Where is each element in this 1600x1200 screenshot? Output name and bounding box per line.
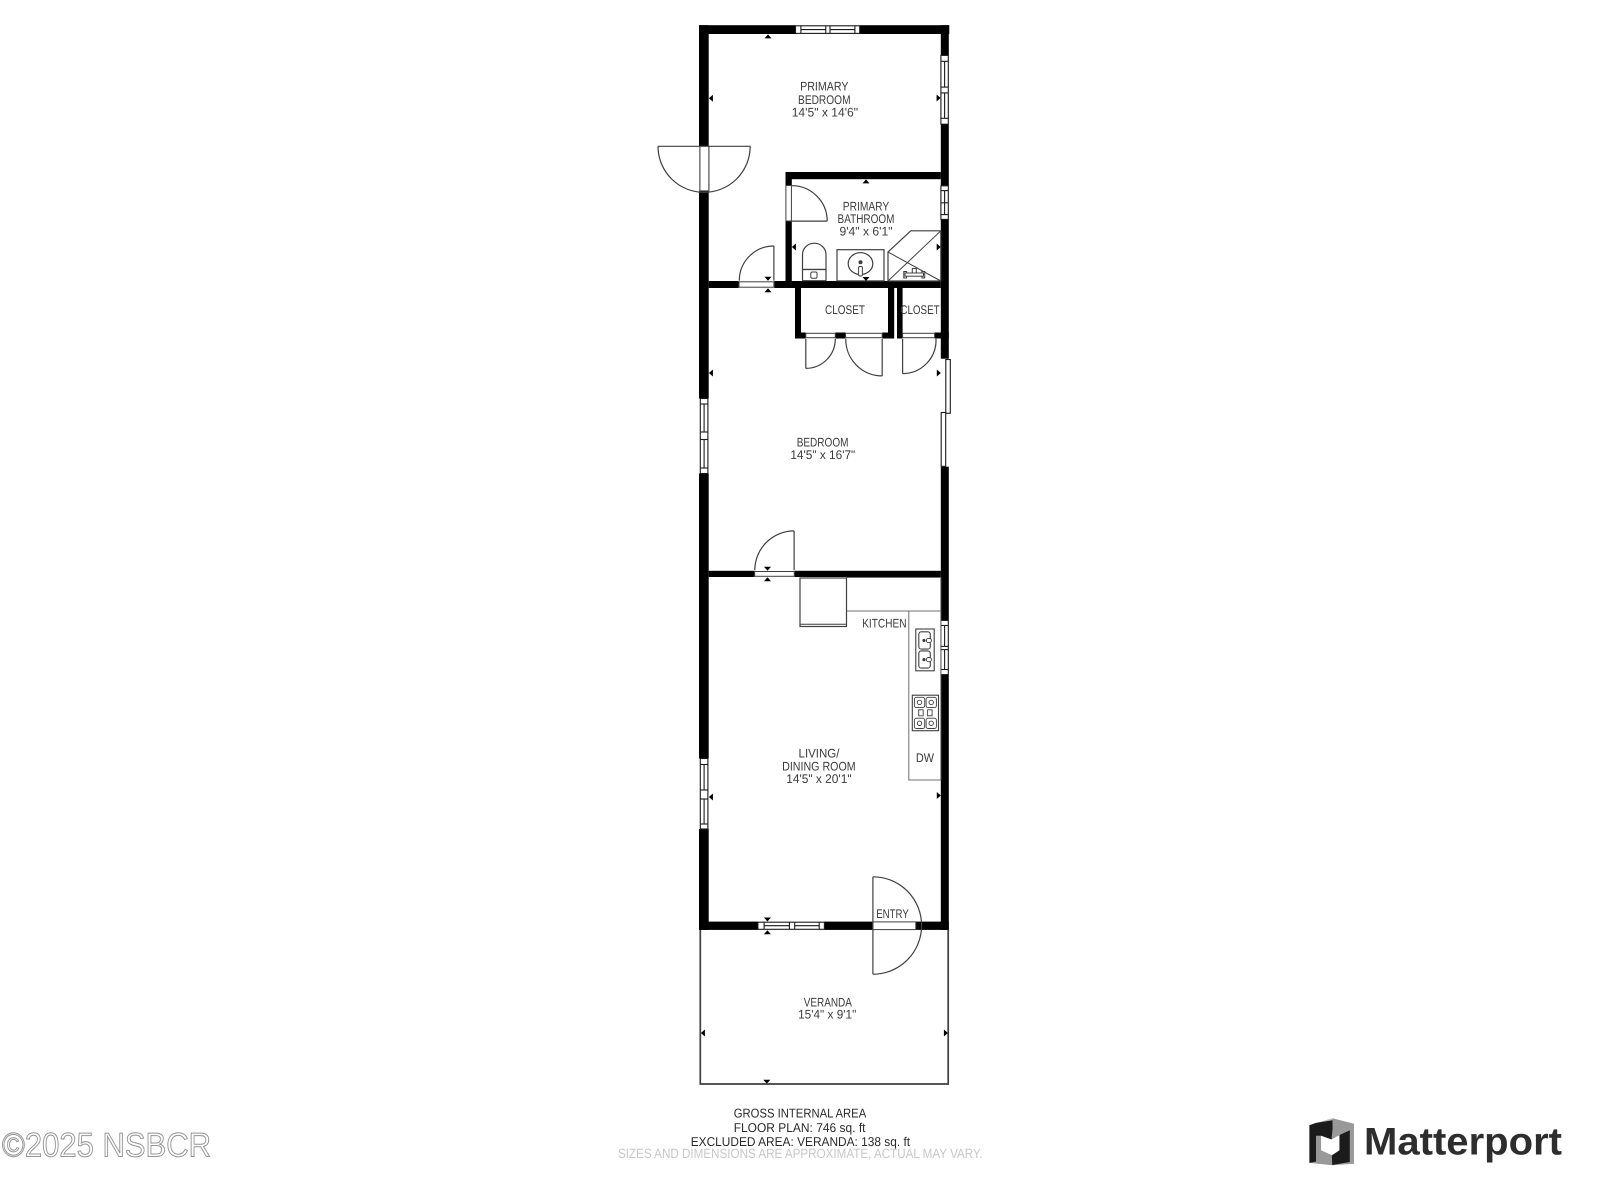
svg-text:©2025 NSBCR: ©2025 NSBCR — [2, 1127, 211, 1165]
svg-text:SIZES AND DIMENSIONS ARE APPRO: SIZES AND DIMENSIONS ARE APPROXIMATE, AC… — [618, 1146, 983, 1161]
svg-text:CLOSET: CLOSET — [825, 303, 865, 317]
svg-text:PRIMARY: PRIMARY — [800, 80, 849, 94]
svg-text:KITCHEN: KITCHEN — [862, 616, 906, 630]
svg-text:15'4" x 9'1": 15'4" x 9'1" — [798, 1008, 856, 1022]
svg-text:14'5" x 20'1": 14'5" x 20'1" — [786, 772, 851, 786]
svg-text:14'5" x 16'7": 14'5" x 16'7" — [790, 448, 855, 462]
svg-text:ENTRY: ENTRY — [876, 907, 909, 921]
svg-text:CLOSET: CLOSET — [900, 303, 940, 317]
svg-text:GROSS INTERNAL AREA: GROSS INTERNAL AREA — [734, 1106, 867, 1121]
svg-text:FLOOR PLAN: 746 sq. ft: FLOOR PLAN: 746 sq. ft — [734, 1120, 866, 1135]
svg-text:14'5" x 14'6": 14'5" x 14'6" — [792, 106, 858, 120]
svg-text:DINING ROOM: DINING ROOM — [782, 759, 856, 773]
svg-text:9'4" x 6'1": 9'4" x 6'1" — [839, 225, 892, 239]
svg-text:DW: DW — [916, 751, 934, 765]
svg-text:Matterport: Matterport — [1364, 1120, 1562, 1163]
